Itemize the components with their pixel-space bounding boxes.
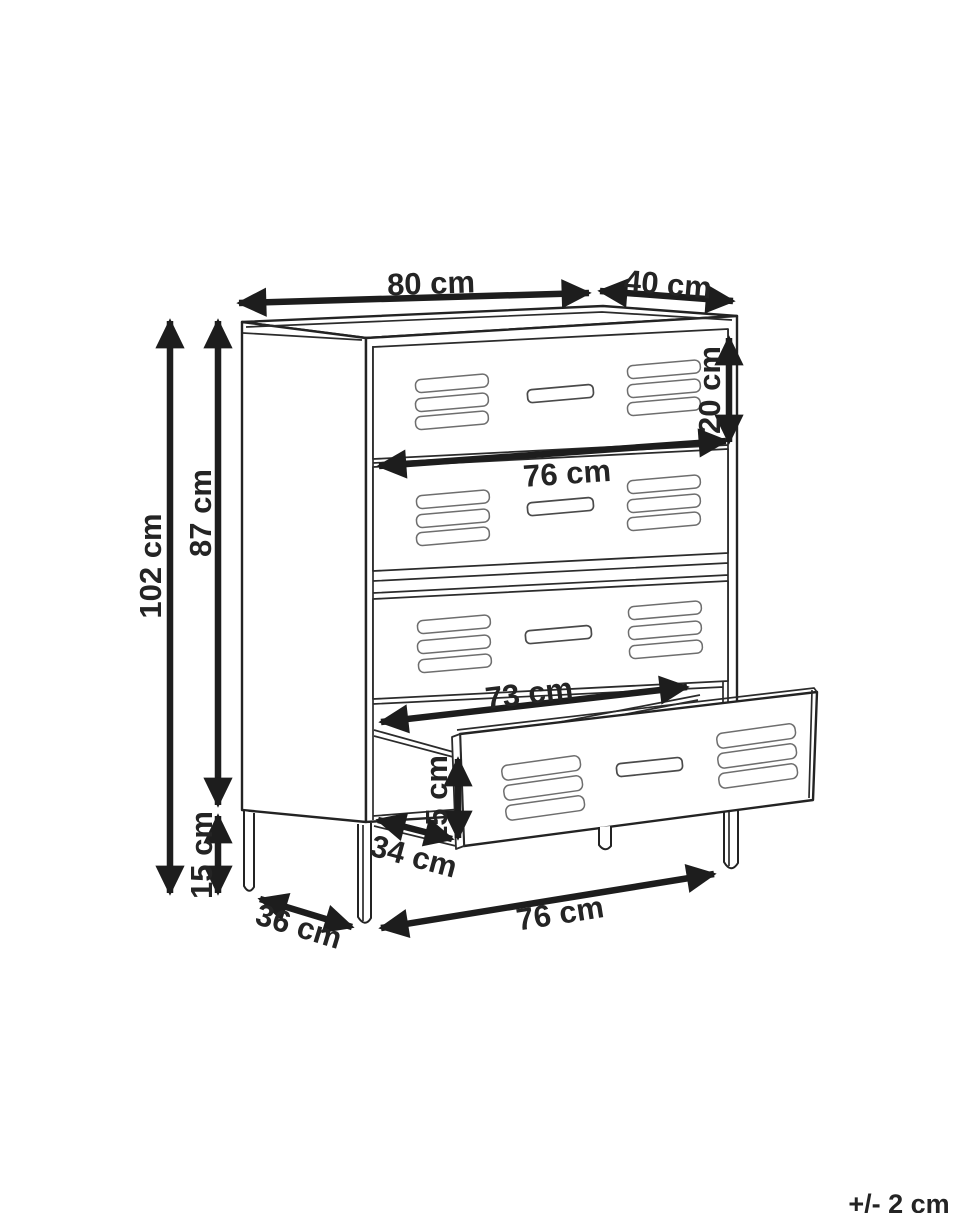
dim-body-height: 87 cm [183, 321, 218, 805]
dim-top-depth-label: 40 cm [623, 263, 714, 306]
dim-top-drawer-height: 20 cm [692, 338, 729, 442]
dim-base-depth-label: 36 cm [252, 897, 346, 956]
dim-leg-height-label: 15 cm [184, 811, 219, 899]
cabinet-dimension-drawing: 80 cm 40 cm 102 cm 87 cm 15 cm 20 cm 76 … [0, 0, 970, 1213]
dim-front-leg-span-label: 76 cm [514, 889, 606, 937]
dim-top-width: 80 cm [239, 264, 589, 303]
cabinet-side-face [242, 322, 366, 822]
dim-top-drawer-height-label: 20 cm [692, 346, 727, 434]
back-left-leg [244, 811, 254, 891]
front-left-leg [358, 823, 371, 923]
dim-base-depth: 36 cm [252, 897, 352, 956]
dim-total-height: 102 cm [133, 321, 170, 893]
dim-front-leg-span: 76 cm [381, 874, 714, 938]
tolerance-note: +/- 2 cm [848, 1189, 949, 1213]
dim-body-height-label: 87 cm [183, 469, 218, 557]
dim-top-width-label: 80 cm [386, 264, 475, 302]
dim-top-depth: 40 cm [600, 263, 733, 306]
dim-leg-height: 15 cm [184, 811, 219, 899]
dim-total-height-label: 102 cm [133, 513, 168, 618]
dim-inner-width-label: 76 cm [522, 453, 612, 494]
back-right-leg-peg [599, 826, 611, 849]
dimension-diagram-page: 80 cm 40 cm 102 cm 87 cm 15 cm 20 cm 76 … [0, 0, 970, 1213]
